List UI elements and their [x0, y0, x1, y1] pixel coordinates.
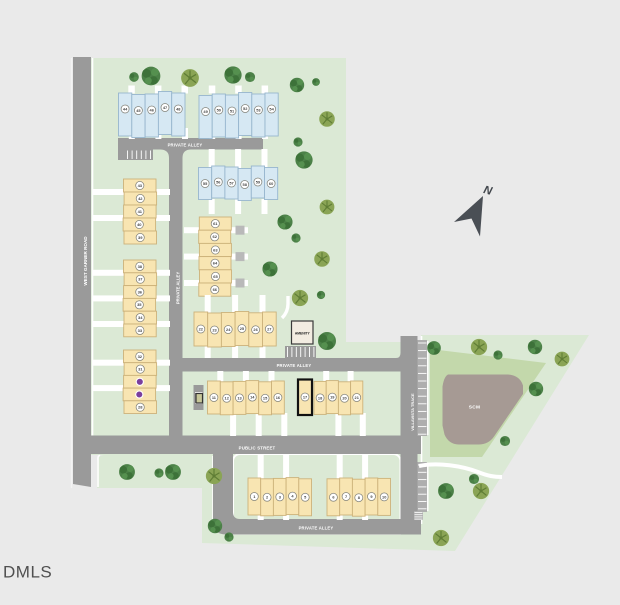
svg-text:61: 61	[213, 221, 218, 226]
svg-text:36: 36	[138, 289, 143, 294]
svg-text:47: 47	[163, 105, 167, 110]
svg-text:39: 39	[138, 235, 143, 240]
svg-text:PRIVATE ALLEY: PRIVATE ALLEY	[175, 272, 180, 304]
svg-text:41: 41	[138, 209, 143, 214]
svg-text:33: 33	[138, 328, 143, 333]
svg-text:37: 37	[138, 277, 143, 282]
svg-text:43: 43	[138, 183, 143, 188]
svg-text:50: 50	[217, 107, 221, 112]
svg-text:DMLS: DMLS	[3, 563, 52, 582]
svg-text:PRIVATE ALLEY: PRIVATE ALLEY	[168, 143, 203, 148]
svg-text:64: 64	[213, 261, 218, 266]
svg-text:AMENITY: AMENITY	[295, 331, 311, 335]
svg-text:28: 28	[138, 405, 143, 410]
svg-text:PRIVATE ALLEY: PRIVATE ALLEY	[277, 363, 312, 368]
svg-text:66: 66	[213, 287, 218, 292]
svg-text:27: 27	[267, 326, 271, 331]
svg-text:SCM: SCM	[469, 405, 481, 411]
svg-text:VILLAVISTA TRACE: VILLAVISTA TRACE	[410, 393, 415, 431]
svg-text:32: 32	[138, 354, 143, 359]
svg-text:62: 62	[212, 234, 217, 239]
svg-text:7: 7	[345, 494, 347, 499]
svg-text:60: 60	[269, 181, 273, 186]
svg-text:63: 63	[213, 247, 218, 252]
svg-text:10: 10	[382, 494, 386, 499]
svg-text:17: 17	[303, 394, 307, 399]
svg-text:WEST GARNER ROAD: WEST GARNER ROAD	[83, 236, 88, 286]
svg-text:38: 38	[138, 264, 143, 269]
svg-text:57: 57	[229, 180, 233, 185]
svg-text:40: 40	[137, 222, 142, 227]
svg-text:31: 31	[138, 367, 143, 372]
svg-text:20: 20	[342, 396, 346, 401]
svg-text:42: 42	[138, 196, 143, 201]
svg-text:65: 65	[213, 274, 218, 279]
svg-text:34: 34	[138, 315, 143, 320]
svg-text:35: 35	[137, 302, 142, 307]
svg-text:PUBLIC STREET: PUBLIC STREET	[239, 446, 276, 451]
svg-text:PRIVATE ALLEY: PRIVATE ALLEY	[299, 526, 334, 531]
